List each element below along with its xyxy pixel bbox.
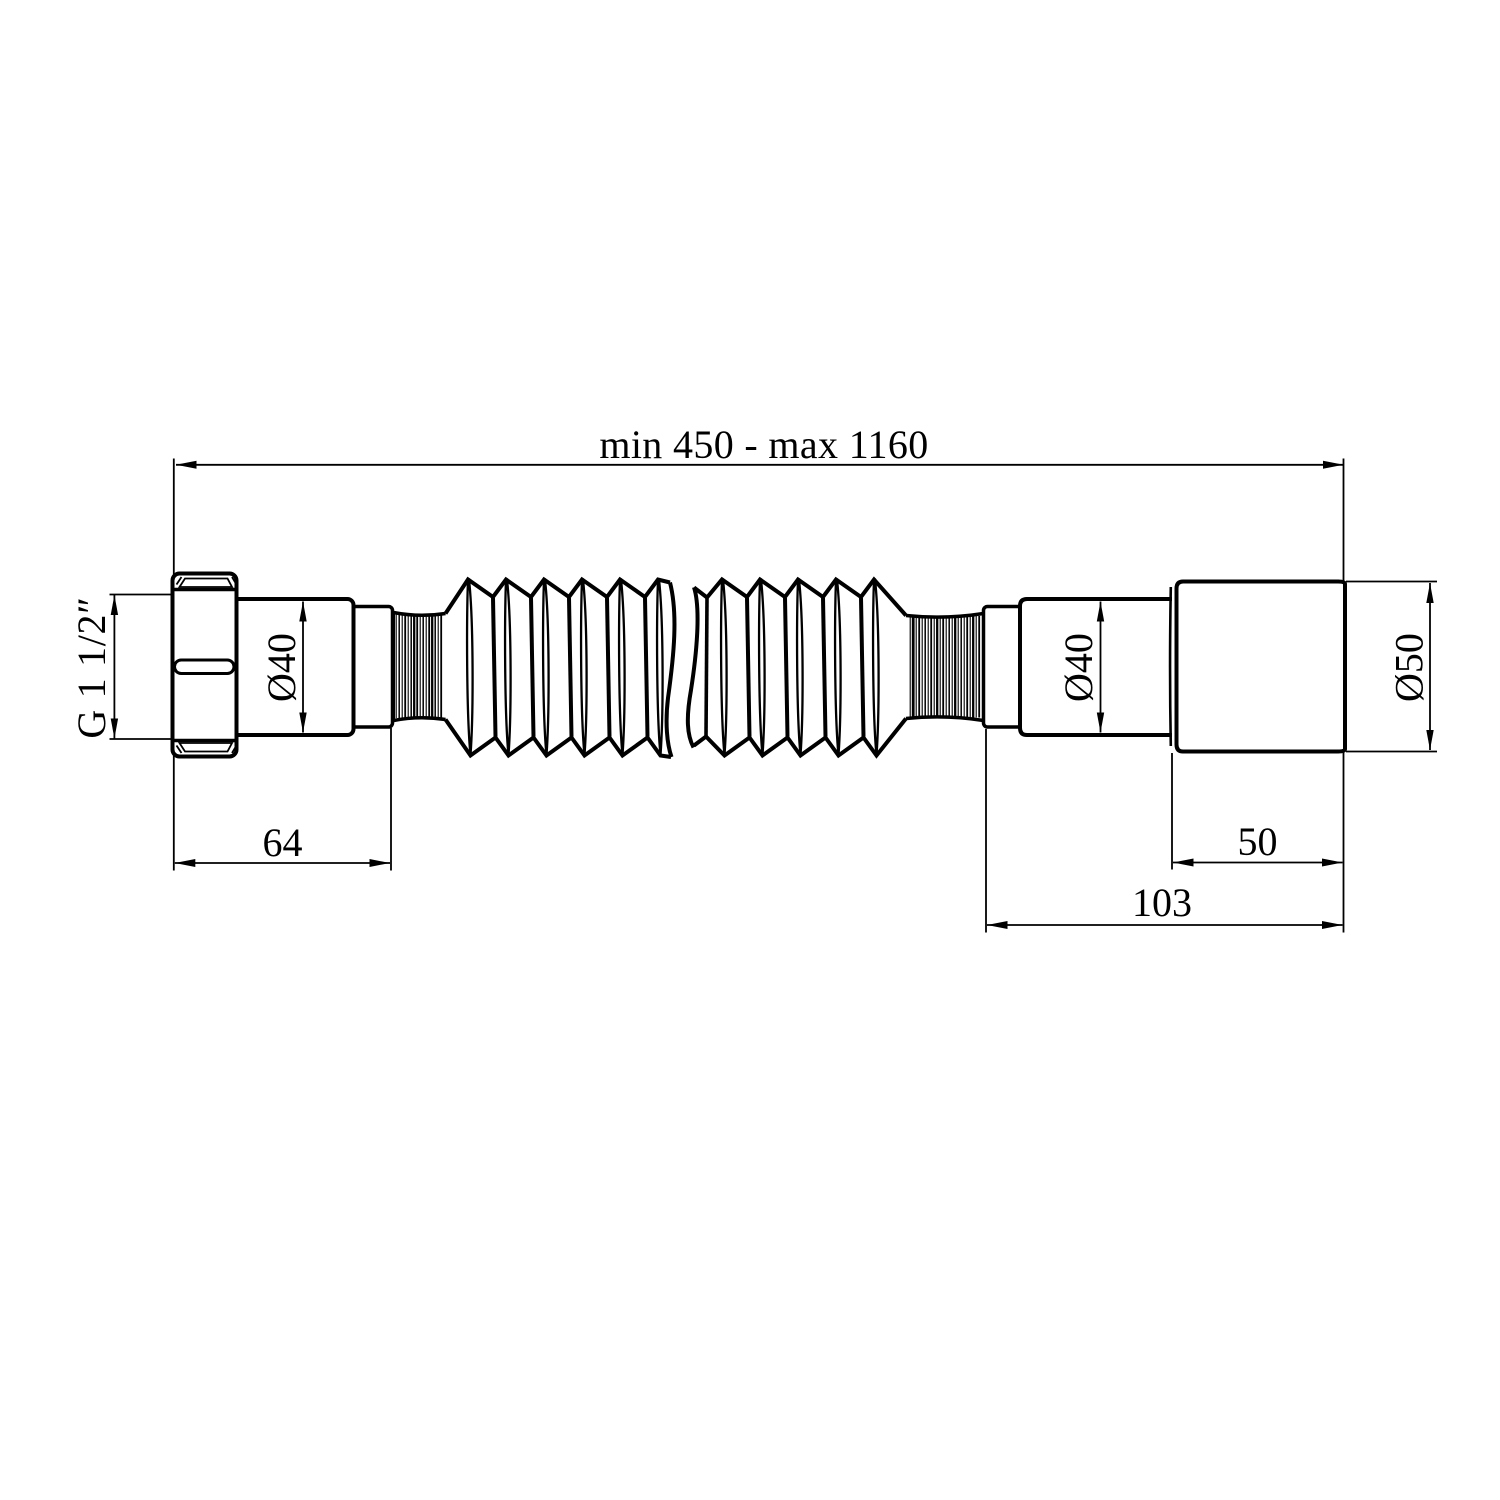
svg-text:G 1 1/2″: G 1 1/2″ xyxy=(69,596,114,738)
svg-text:Ø50: Ø50 xyxy=(1387,633,1432,702)
svg-text:min 450 - max 1160: min 450 - max 1160 xyxy=(599,422,928,467)
svg-text:Ø40: Ø40 xyxy=(259,633,304,702)
svg-text:50: 50 xyxy=(1238,819,1278,864)
svg-text:103: 103 xyxy=(1132,880,1192,925)
svg-text:Ø40: Ø40 xyxy=(1056,633,1101,702)
svg-text:64: 64 xyxy=(263,820,303,865)
